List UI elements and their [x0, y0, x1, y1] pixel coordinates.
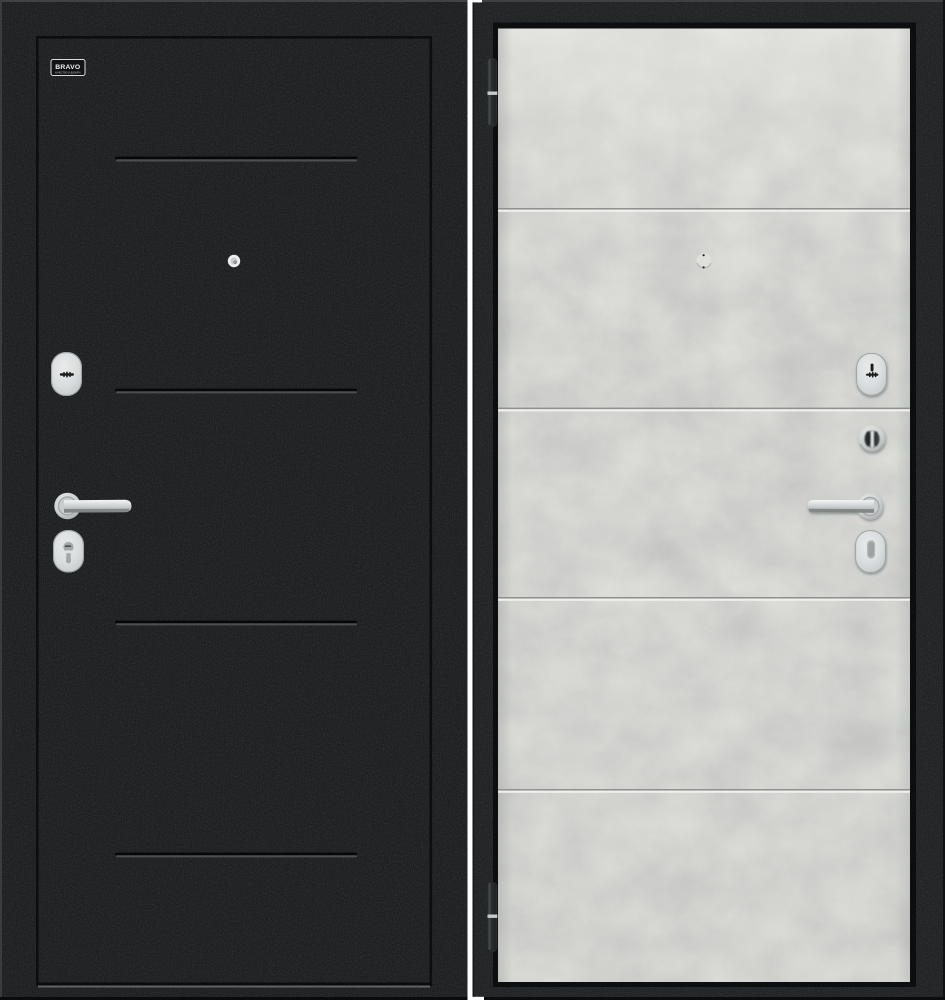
svg-text:КАЧЕСТВО И ДИЗАЙН: КАЧЕСТВО И ДИЗАЙН: [55, 71, 81, 74]
svg-text:BRAVO: BRAVO: [55, 64, 80, 71]
